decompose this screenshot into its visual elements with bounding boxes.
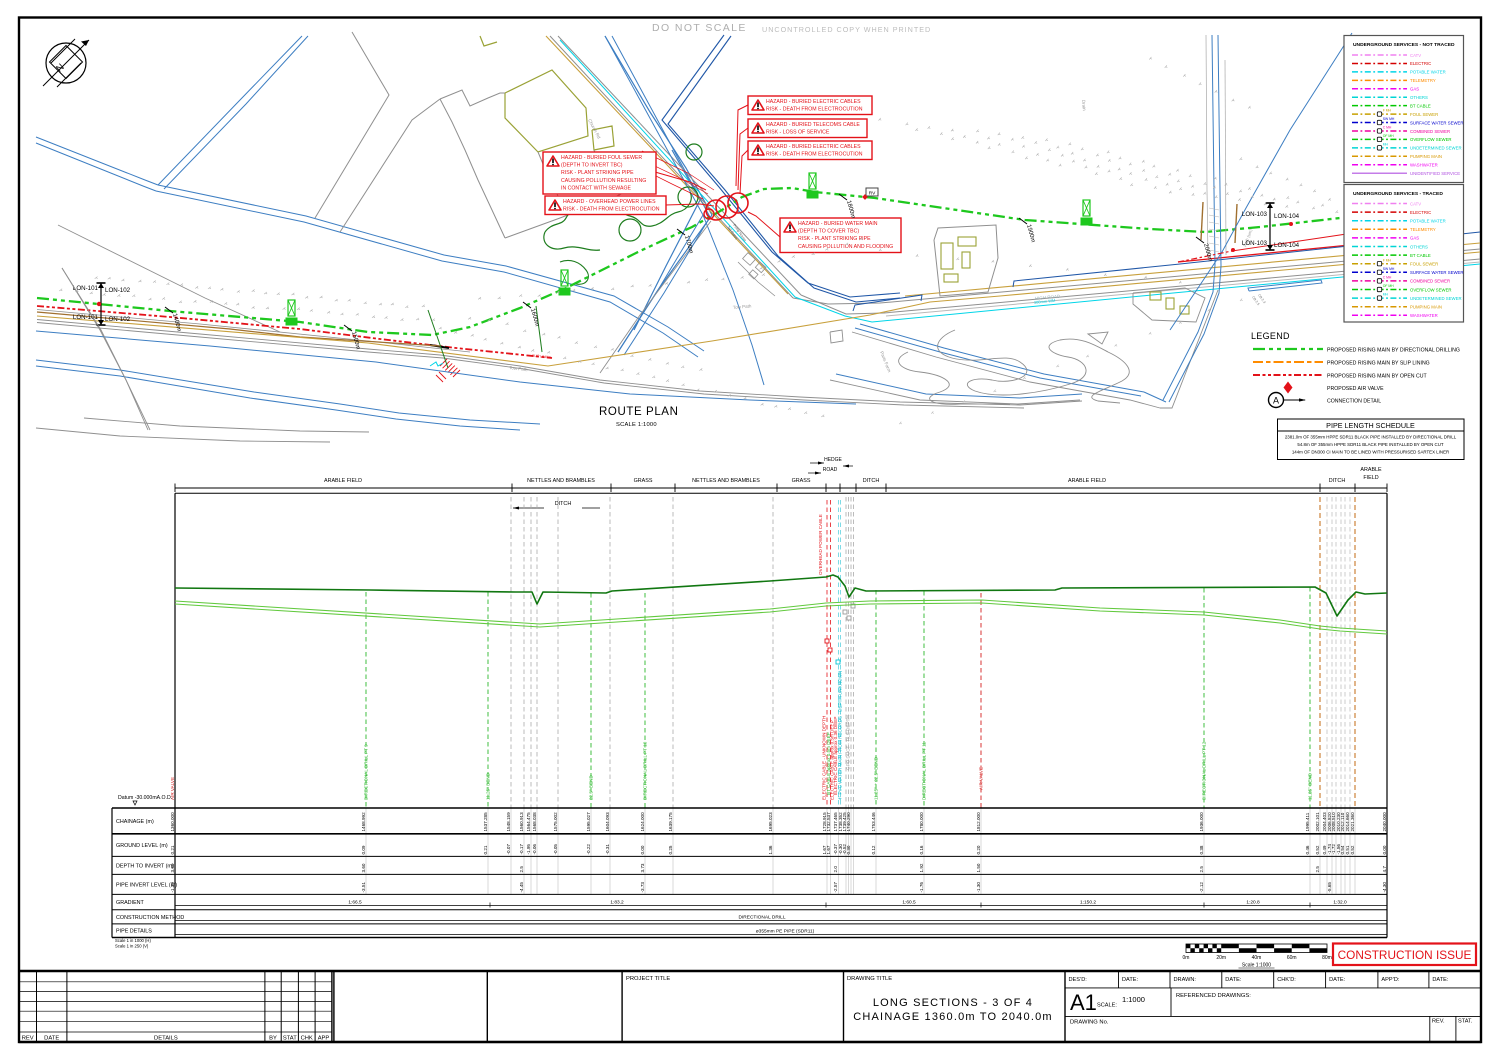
svg-text:PROPOSED RISING MAIN BY DIRECT: PROPOSED RISING MAIN BY DIRECTIONAL DRIL…	[1327, 348, 1460, 354]
svg-text:OTHERS: OTHERS	[1410, 244, 1428, 249]
svg-text:DATE:: DATE:	[1225, 977, 1242, 983]
svg-text:Scale 1 in 250 (V): Scale 1 in 250 (V)	[115, 944, 149, 949]
svg-text:1695.023: 1695.023	[768, 812, 773, 832]
svg-text:4" PVC WATER MAIN FROM RECORDS: 4" PVC WATER MAIN FROM RECORDS - DEPTH U…	[838, 671, 843, 800]
svg-text:2.5: 2.5	[519, 866, 524, 873]
svg-text:22.5° BEND: 22.5° BEND	[589, 775, 594, 800]
svg-text:ROUTE PLAN: ROUTE PLAN	[599, 406, 679, 418]
svg-text:1568.038: 1568.038	[532, 812, 537, 832]
svg-text:-0.17: -0.17	[519, 844, 524, 855]
svg-text:LON-104: LON-104	[1274, 213, 1300, 220]
svg-text:BT CABLE: BT CABLE	[1410, 253, 1431, 258]
svg-text:LON-104: LON-104	[1274, 242, 1300, 249]
svg-text:DIRECTIONAL DRILL: DIRECTIONAL DRILL	[738, 915, 785, 921]
svg-text:PROPOSED AIR VALVE: PROPOSED AIR VALVE	[1327, 386, 1384, 392]
svg-text:PROPOSED RISING MAIN BY OPEN C: PROPOSED RISING MAIN BY OPEN CUT	[1327, 374, 1427, 380]
svg-text:0.52: 0.52	[1350, 845, 1355, 854]
svg-text:REV: REV	[22, 1036, 34, 1042]
svg-text:1639.175: 1639.175	[668, 812, 673, 832]
svg-text:1595.027: 1595.027	[586, 812, 591, 832]
svg-text:CONSTRUCTION METHOD: CONSTRUCTION METHOD	[116, 915, 184, 921]
svg-text:DITCH: DITCH	[863, 478, 880, 484]
svg-text:1:1000: 1:1000	[1122, 995, 1145, 1004]
svg-text:LEGEND: LEGEND	[1251, 331, 1290, 341]
svg-text:CHAINAGE (m): CHAINAGE (m)	[116, 819, 154, 825]
svg-text:HAZARD - BURIED ELECTRIC CABLE: HAZARD - BURIED ELECTRIC CABLES	[766, 99, 861, 105]
svg-text:2021.360: 2021.360	[1350, 812, 1355, 832]
svg-text:1:66.5: 1:66.5	[348, 900, 362, 906]
svg-text:DIRECTIONAL DRILL PT 10: DIRECTIONAL DRILL PT 10	[643, 741, 648, 800]
svg-text:GAS: GAS	[1410, 87, 1419, 92]
svg-text:4.7: 4.7	[1382, 866, 1387, 873]
svg-text:1.67: 1.67	[826, 845, 831, 854]
svg-text:HAZARD - BURIED FOUL SEWER: HAZARD - BURIED FOUL SEWER	[561, 155, 642, 161]
svg-text:UNDERGROUND SERVICES - TRACED: UNDERGROUND SERVICES - TRACED	[1353, 191, 1443, 197]
svg-text:BT CABLE: BT CABLE	[1410, 103, 1431, 108]
svg-text:1:150.2: 1:150.2	[1080, 900, 1096, 906]
svg-text:0.09: 0.09	[361, 845, 366, 854]
svg-text:0.52: 0.52	[1315, 845, 1320, 854]
svg-text:UNCONTROLLED COPY WHEN PRINTED: UNCONTROLLED COPY WHEN PRINTED	[762, 25, 931, 34]
svg-text:1360.000: 1360.000	[170, 812, 175, 832]
svg-text:ELECTRIC: ELECTRIC	[1410, 61, 1431, 66]
svg-text:-1.39: -1.39	[170, 882, 175, 893]
svg-text:0.12: 0.12	[871, 845, 876, 854]
svg-text:1.50: 1.50	[976, 863, 981, 872]
svg-text:COMBINED SEWER: COMBINED SEWER	[1410, 279, 1450, 284]
svg-text:0.16: 0.16	[919, 845, 924, 854]
svg-text:CONSTRUCTION ISSUE: CONSTRUCTION ISSUE	[1338, 948, 1472, 962]
svg-text:DITCH: DITCH	[555, 501, 572, 507]
svg-text:UNIDENTIFIED SERVICE: UNIDENTIFIED SERVICE	[1410, 171, 1460, 176]
svg-text:STAT.: STAT.	[1458, 1019, 1473, 1025]
svg-text:DIRECTIONAL DRILL PT 9: DIRECTIONAL DRILL PT 9	[364, 744, 369, 800]
svg-text:1:60.5: 1:60.5	[902, 900, 916, 906]
svg-text:2381.0m OF 355mm HPPE SDR11 BL: 2381.0m OF 355mm HPPE SDR11 BLACK PIPE I…	[1285, 435, 1457, 440]
svg-text:Scale 1 in 1000 (H): Scale 1 in 1000 (H)	[115, 938, 151, 943]
svg-text:0.38: 0.38	[1199, 845, 1204, 854]
svg-text:GRASS: GRASS	[792, 478, 811, 484]
svg-text:NETTLES AND BRAMBLES: NETTLES AND BRAMBLES	[692, 478, 760, 484]
svg-text:PUMPING MAIN: PUMPING MAIN	[1410, 305, 1442, 310]
svg-text:1740.290: 1740.290	[846, 812, 851, 832]
svg-text:GROUND LEVEL (m): GROUND LEVEL (m)	[116, 843, 168, 849]
svg-text:2.5: 2.5	[1315, 866, 1320, 873]
svg-text:-4.30: -4.30	[1382, 882, 1387, 893]
svg-text:GRADIENT: GRADIENT	[116, 900, 145, 906]
svg-text:C MH: C MH	[1383, 276, 1392, 280]
svg-text:-1.30: -1.30	[976, 882, 981, 893]
svg-text:APP: APP	[318, 1036, 330, 1042]
svg-text:3.60: 3.60	[170, 863, 175, 872]
svg-text:1575.002: 1575.002	[553, 812, 558, 832]
svg-text:1995.411: 1995.411	[1305, 812, 1310, 831]
svg-text:1.36: 1.36	[768, 845, 773, 854]
svg-text:0.25: 0.25	[668, 845, 673, 854]
svg-text:0.00: 0.00	[640, 845, 645, 854]
svg-text:PIPE LENGTH SCHEDULE: PIPE LENGTH SCHEDULE	[1326, 421, 1415, 430]
svg-text:SW MH: SW MH	[1383, 117, 1395, 121]
svg-text:1548.159: 1548.159	[506, 812, 511, 832]
svg-text:DATE: DATE	[44, 1036, 59, 1042]
svg-text:MH: MH	[1383, 293, 1389, 297]
svg-text:SCALE 1:1000: SCALE 1:1000	[616, 422, 657, 428]
svg-text:SCALE:: SCALE:	[1097, 1003, 1117, 1009]
svg-text:RISK - PLANT STRIKING PIPE: RISK - PLANT STRIKING PIPE	[561, 170, 634, 176]
svg-text:PROPOSED RISING MAIN BY SLIP L: PROPOSED RISING MAIN BY SLIP LINING	[1327, 361, 1430, 367]
svg-text:2.5: 2.5	[1199, 866, 1204, 873]
svg-text:ROAD: ROAD	[823, 467, 838, 473]
svg-text:11.25° BEND: 11.25° BEND	[486, 772, 491, 800]
svg-text:-0.05: -0.05	[553, 844, 558, 855]
svg-text:3.73: 3.73	[640, 863, 645, 872]
svg-text:1936.000: 1936.000	[1199, 812, 1204, 832]
svg-text:ARABLE: ARABLE	[1360, 467, 1382, 473]
svg-text:1812.000: 1812.000	[976, 812, 981, 832]
svg-text:POTABLE WATER: POTABLE WATER	[1410, 219, 1446, 224]
svg-text:REV.: REV.	[1432, 1019, 1445, 1025]
svg-text:AIR VALVE: AIR VALVE	[979, 767, 984, 790]
svg-text:80m: 80m	[1322, 955, 1332, 961]
svg-text:GPO DUCT - TILE DEPTH: GPO DUCT - TILE DEPTH	[846, 715, 851, 770]
svg-text:0.20: 0.20	[976, 845, 981, 854]
svg-text:-3.51: -3.51	[361, 882, 366, 893]
svg-text:-2.12: -2.12	[1199, 882, 1204, 893]
svg-text:OVERFLOW SEWER: OVERFLOW SEWER	[1410, 137, 1452, 142]
svg-text:0.46: 0.46	[1305, 845, 1310, 854]
svg-text:STAT: STAT	[283, 1036, 297, 1042]
svg-text:(DEPTH TO INVERT TBC): (DEPTH TO INVERT TBC)	[561, 163, 623, 169]
svg-text:LON-103: LON-103	[1242, 240, 1268, 247]
svg-text:-4.45: -4.45	[519, 882, 524, 893]
svg-text:CAUSING POLLUTION RESULTING: CAUSING POLLUTION RESULTING	[561, 178, 646, 184]
svg-text:LONG SECTIONS - 3 OF 4: LONG SECTIONS - 3 OF 4	[873, 997, 1033, 1009]
svg-text:OF MH: OF MH	[1383, 134, 1394, 138]
svg-text:LON-103: LON-103	[1242, 211, 1268, 218]
svg-text:FIELD: FIELD	[1363, 475, 1378, 481]
svg-text:CATV: CATV	[1410, 53, 1421, 58]
svg-text:DRAWING No.: DRAWING No.	[1070, 1020, 1109, 1026]
svg-text:A1: A1	[1070, 990, 1097, 1015]
svg-text:54.8m OF 355mm HPPE SDR11 BLAC: 54.8m OF 355mm HPPE SDR11 BLACK PIPE INS…	[1297, 442, 1443, 447]
svg-text:FOUL SEWER: FOUL SEWER	[1410, 112, 1438, 117]
svg-text:11.25° BEND: 11.25° BEND	[1308, 772, 1313, 800]
svg-text:2002.101: 2002.101	[1315, 812, 1320, 832]
svg-text:DIRECTIONAL DRILL PT 12: DIRECTIONAL DRILL PT 12	[1202, 741, 1207, 800]
svg-text:IN CONTACT WITH SEWAGE: IN CONTACT WITH SEWAGE	[561, 185, 631, 191]
svg-text:TELEMETRY: TELEMETRY	[1410, 227, 1436, 232]
svg-text:DRAWING TITLE: DRAWING TITLE	[847, 976, 892, 982]
svg-text:-5.65: -5.65	[1327, 882, 1332, 893]
svg-text:2.0: 2.0	[833, 866, 838, 873]
svg-text:-0.31: -0.31	[605, 844, 610, 855]
svg-text:SURFACE WATER SEWER: SURFACE WATER SEWER	[1410, 270, 1463, 275]
svg-text:1624.000: 1624.000	[640, 812, 645, 832]
svg-text:PIPE DETAILS: PIPE DETAILS	[116, 929, 152, 935]
svg-text:2040.000: 2040.000	[1382, 812, 1387, 832]
svg-text:1780.000: 1780.000	[919, 812, 924, 832]
svg-text:RISK - DEATH FROM ELECTROCUTIO: RISK - DEATH FROM ELECTROCUTION	[766, 107, 863, 113]
svg-text:1.92: 1.92	[919, 863, 924, 872]
svg-text:1564.475: 1564.475	[526, 812, 531, 832]
svg-text:HAZARD - OVERHEAD POWER LINES: HAZARD - OVERHEAD POWER LINES	[563, 199, 656, 205]
svg-text:Drain: Drain	[1081, 100, 1087, 112]
svg-text:APP’D:: APP’D:	[1381, 977, 1399, 983]
svg-text:F MH: F MH	[1383, 258, 1392, 262]
svg-text:-0.06: -0.06	[532, 844, 537, 855]
svg-text:-0.22: -0.22	[586, 844, 591, 855]
svg-text:DIRECTIONAL DRILL PT 11: DIRECTIONAL DRILL PT 11	[922, 742, 927, 800]
svg-text:WASHWATER: WASHWATER	[1410, 313, 1438, 318]
svg-text:1:32.0: 1:32.0	[1333, 900, 1347, 906]
svg-text:OF MH: OF MH	[1383, 284, 1394, 288]
svg-text:20m: 20m	[1216, 955, 1226, 961]
svg-text:CONNECTION DETAIL: CONNECTION DETAIL	[1327, 399, 1381, 405]
svg-text:RISK - DEATH FROM ELECTROCUTIO: RISK - DEATH FROM ELECTROCUTION	[563, 207, 660, 213]
svg-text:OTHERS: OTHERS	[1410, 95, 1428, 100]
svg-text:DATE:: DATE:	[1432, 977, 1449, 983]
svg-text:UNDETERMINED SEWER: UNDETERMINED SEWER	[1410, 296, 1462, 301]
svg-text:1:20.8: 1:20.8	[1246, 900, 1260, 906]
svg-text:0.21: 0.21	[170, 845, 175, 854]
svg-text:1732.537: 1732.537	[826, 812, 831, 832]
svg-text:HEDGE: HEDGE	[824, 457, 842, 463]
svg-text:DES’D:: DES’D:	[1069, 977, 1088, 983]
svg-text:WASHWATER: WASHWATER	[1410, 163, 1438, 168]
svg-text:ø355mm PE PIPE (SDR11): ø355mm PE PIPE (SDR11)	[756, 929, 815, 935]
svg-text:HAZARD - BURIED ELECTRIC CABLE: HAZARD - BURIED ELECTRIC CABLES	[766, 144, 861, 150]
svg-text:1560.913: 1560.913	[519, 812, 524, 832]
svg-text:DETAILS: DETAILS	[154, 1036, 178, 1042]
svg-text:CATV: CATV	[1410, 201, 1421, 206]
svg-text:-1.76: -1.76	[919, 882, 924, 893]
svg-text:1753.446: 1753.446	[871, 812, 876, 832]
svg-text:-0.07: -0.07	[506, 844, 511, 855]
svg-text:RISK - PLANT STRIKING PIPE: RISK - PLANT STRIKING PIPE	[798, 236, 871, 242]
svg-text:40m: 40m	[1252, 955, 1262, 961]
svg-text:SW MH: SW MH	[1383, 267, 1395, 271]
svg-text:11.25° + 22.5° BEND: 11.25° + 22.5° BEND	[874, 756, 879, 800]
svg-text:CHK: CHK	[301, 1036, 313, 1042]
svg-text:0.30: 0.30	[846, 845, 851, 854]
svg-text:PUMPING MAIN: PUMPING MAIN	[1410, 154, 1442, 159]
svg-text:REFERENCED DRAWINGS:: REFERENCED DRAWINGS:	[1176, 993, 1251, 999]
svg-text:CHK’D:: CHK’D:	[1277, 977, 1296, 983]
svg-text:RISK - LOSS OF SERVICE: RISK - LOSS OF SERVICE	[766, 130, 830, 136]
svg-text:UNDETERMINED SEWER: UNDETERMINED SEWER	[1410, 146, 1462, 151]
svg-text:1537.285: 1537.285	[483, 812, 488, 832]
svg-text:RV: RV	[869, 191, 876, 197]
svg-text:DATE:: DATE:	[1329, 977, 1346, 983]
svg-text:HAZARD - BURIED WATER MAIN: HAZARD - BURIED WATER MAIN	[798, 221, 878, 227]
svg-text:Scale 1:1000: Scale 1:1000	[1242, 963, 1271, 969]
svg-text:COMBINED SEWER: COMBINED SEWER	[1410, 129, 1450, 134]
svg-text:GAS: GAS	[1410, 236, 1419, 241]
svg-text:LON-102: LON-102	[105, 287, 131, 294]
svg-text:A: A	[1273, 395, 1279, 405]
svg-text:ARABLE FIELD: ARABLE FIELD	[324, 478, 362, 484]
svg-text:60m: 60m	[1287, 955, 1297, 961]
svg-text:OVERFLOW SEWER: OVERFLOW SEWER	[1410, 287, 1452, 292]
svg-text:DITCH: DITCH	[1329, 478, 1346, 484]
svg-text:DATE:: DATE:	[1122, 977, 1139, 983]
svg-text:HAZARD - BURIED TELECOMS CABLE: HAZARD - BURIED TELECOMS CABLE	[766, 122, 860, 128]
svg-text:UNDERGROUND SERVICES - NOT TRA: UNDERGROUND SERVICES - NOT TRACED	[1353, 42, 1455, 48]
svg-text:(DEPTH TO COVER TBC): (DEPTH TO COVER TBC)	[798, 229, 859, 235]
svg-text:C MH: C MH	[1383, 126, 1392, 130]
svg-text:NETTLES AND BRAMBLES: NETTLES AND BRAMBLES	[527, 478, 595, 484]
svg-text:ARABLE FIELD: ARABLE FIELD	[1068, 478, 1106, 484]
svg-text:GRASS: GRASS	[634, 478, 653, 484]
svg-text:0.21: 0.21	[483, 845, 488, 854]
svg-text:0m: 0m	[1183, 955, 1190, 961]
svg-text:1468.992: 1468.992	[361, 812, 366, 832]
svg-text:-1.95: -1.95	[526, 844, 531, 855]
svg-text:FOUL SEWER: FOUL SEWER	[1410, 262, 1438, 267]
svg-text:CHAINAGE 1360.0m TO 2040.0m: CHAINAGE 1360.0m TO 2040.0m	[853, 1011, 1053, 1023]
svg-text:-3.73: -3.73	[640, 882, 645, 893]
svg-text:TELEMETRY: TELEMETRY	[1410, 78, 1436, 83]
svg-text:DO NOT SCALE: DO NOT SCALE	[652, 22, 747, 34]
svg-text:-2.57: -2.57	[833, 882, 838, 893]
svg-text:BY: BY	[269, 1036, 277, 1042]
svg-text:1604.093: 1604.093	[605, 812, 610, 832]
svg-text:1:83.2: 1:83.2	[610, 900, 624, 906]
svg-text:ELECTRIC: ELECTRIC	[1410, 210, 1431, 215]
svg-text:OVERHEAD POWER CABLE: OVERHEAD POWER CABLE	[818, 514, 823, 575]
svg-text:Datum -30.000mA.O.D.: Datum -30.000mA.O.D.	[118, 795, 172, 801]
svg-text:DRAWN:: DRAWN:	[1174, 977, 1197, 983]
svg-text:144m OF DN300 CI MAIN TO BE LI: 144m OF DN300 CI MAIN TO BE LINED WITH P…	[1292, 450, 1449, 455]
svg-text:3.60: 3.60	[361, 863, 366, 872]
svg-text:DEPTH TO INVERT (m): DEPTH TO INVERT (m)	[116, 863, 174, 869]
svg-text:PIPE INVERT LEVEL (m): PIPE INVERT LEVEL (m)	[116, 882, 177, 888]
svg-text:SURFACE WATER SEWER: SURFACE WATER SEWER	[1410, 120, 1463, 125]
svg-text:RISK - DEATH FROM ELECTROCUTIO: RISK - DEATH FROM ELECTROCUTION	[766, 152, 863, 158]
svg-text:POTABLE WATER: POTABLE WATER	[1410, 70, 1446, 75]
svg-text:PROJECT TITLE: PROJECT TITLE	[626, 976, 670, 982]
svg-text:0.00: 0.00	[1382, 845, 1387, 854]
svg-text:MH: MH	[1383, 142, 1389, 146]
svg-text:F MH: F MH	[1383, 109, 1392, 113]
svg-text:LON-102: LON-102	[105, 316, 131, 323]
